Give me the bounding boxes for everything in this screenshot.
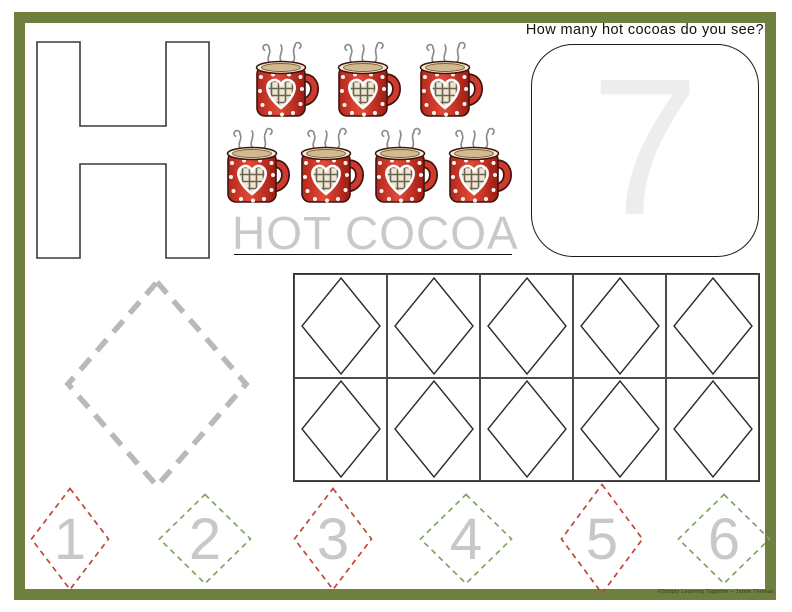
number-diamond-6: 6	[677, 493, 771, 585]
practice-number: 1	[30, 487, 110, 591]
ten-frame-cell	[294, 378, 387, 482]
hot-cocoa-mug-icon	[440, 122, 512, 208]
number-diamond-2: 2	[158, 493, 252, 585]
answer-box: 7	[531, 44, 759, 257]
ten-frame-cell	[387, 378, 480, 482]
credit-label: ©Simply Learning Together – Jamie Thomas	[658, 589, 774, 595]
diamond-icon	[301, 380, 381, 478]
trace-diamond-icon	[64, 278, 250, 490]
number-diamond-5: 5	[560, 483, 644, 595]
ten-frame-cell	[666, 274, 759, 378]
answer-number: 7	[591, 50, 699, 245]
cocoa-mug-group	[215, 36, 515, 208]
number-diamond-4: 4	[419, 493, 513, 585]
hot-cocoa-mug-icon	[218, 122, 290, 208]
diamond-icon	[580, 380, 660, 478]
ten-frame-cell	[480, 378, 573, 482]
hot-cocoa-mug-icon	[292, 122, 364, 208]
practice-number: 4	[419, 493, 513, 585]
letter-h-outline	[35, 40, 211, 260]
diamond-icon	[580, 277, 660, 375]
practice-number: 2	[158, 493, 252, 585]
diamond-icon	[394, 277, 474, 375]
practice-number: 6	[677, 493, 771, 585]
mug-row	[218, 122, 512, 208]
ten-frame-cell	[573, 378, 666, 482]
ten-frame-cell	[387, 274, 480, 378]
mug-row	[247, 36, 483, 122]
ten-frame-cell	[573, 274, 666, 378]
ten-frame-cell	[480, 274, 573, 378]
ten-frame-cell	[666, 378, 759, 482]
diamond-icon	[673, 380, 753, 478]
diamond-icon	[487, 277, 567, 375]
hot-cocoa-mug-icon	[247, 36, 319, 122]
word-underline	[234, 254, 512, 255]
diamond-icon	[673, 277, 753, 375]
hot-cocoa-mug-icon	[411, 36, 483, 122]
practice-number: 5	[560, 483, 644, 595]
question-label: How many hot cocoas do you see?	[430, 22, 764, 38]
number-diamond-3: 3	[293, 487, 373, 591]
hot-cocoa-mug-icon	[329, 36, 401, 122]
ten-frame-grid	[293, 273, 760, 482]
diamond-icon	[487, 380, 567, 478]
diamond-icon	[394, 380, 474, 478]
practice-number: 3	[293, 487, 373, 591]
hot-cocoa-mug-icon	[366, 122, 438, 208]
word-label: HOT COCOA	[232, 206, 519, 260]
worksheet-page: How many hot cocoas do you see? 7 HOT CO…	[0, 0, 792, 612]
diamond-icon	[301, 277, 381, 375]
number-diamond-1: 1	[30, 487, 110, 591]
ten-frame-cell	[294, 274, 387, 378]
